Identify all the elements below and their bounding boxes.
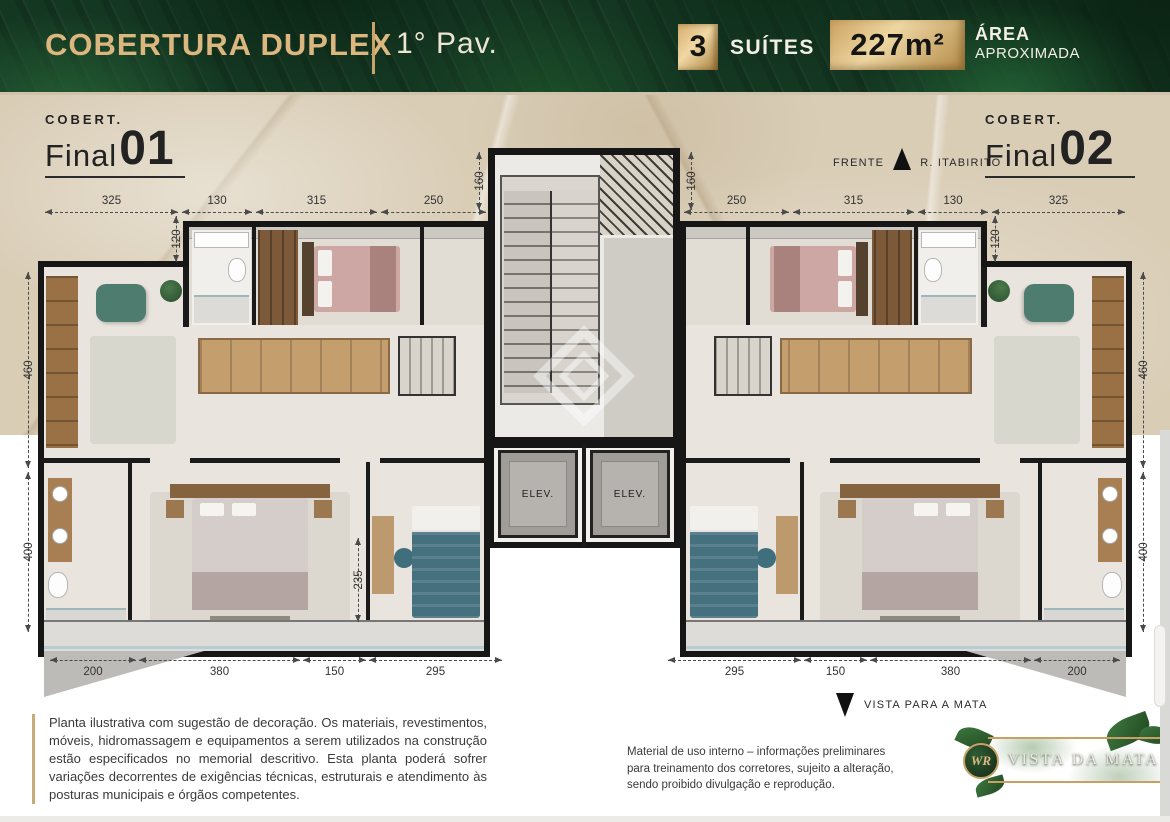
plan-stage: COBERT. Final 01 COBERT. Final 02 FRENTE… [0, 95, 1170, 822]
dim-top-left-3: 250 [381, 212, 486, 213]
plant [988, 280, 1010, 302]
vista-note: VISTA PARA A MATA [836, 693, 988, 717]
elevator-shaft-1: ELEV. [498, 450, 578, 538]
elevator-shaft-2: ELEV. [590, 450, 670, 538]
master-pillow-2 [914, 503, 938, 516]
nightstand-1 [986, 500, 1004, 518]
wardrobe-living [1092, 276, 1124, 448]
suite2-bed [690, 532, 758, 618]
dim-top-left-0: 325 [45, 212, 178, 213]
suite2-pillows [690, 506, 758, 530]
header-banner: COBERTURA DUPLEX 1° Pav. 3 SUÍTES 227m² … [0, 0, 1170, 95]
bed-top-throw [774, 246, 800, 312]
page-title: COBERTURA DUPLEX [45, 27, 392, 63]
dim-top-right-2: 130 [918, 212, 988, 213]
armchair [1024, 284, 1074, 322]
dim-side-left-0: 460 [28, 272, 29, 468]
closet-row [780, 338, 972, 394]
dim-top-right-1: 315 [793, 212, 914, 213]
floor-label: 1° Pav. [396, 27, 498, 61]
vista-da-mata-logo: VISTA DA MATA WR [955, 718, 1165, 798]
wall-mid-1 [1020, 458, 1126, 463]
suites-count-badge: 3 [678, 24, 718, 70]
master-toilet [1102, 572, 1122, 598]
vista-label: VISTA PARA A MATA [864, 699, 988, 711]
balcony-railing [686, 646, 1126, 649]
dim-bottom-left-3: 295 [369, 660, 502, 661]
wall-bath-bedroom [914, 227, 918, 325]
sink-1 [1102, 486, 1118, 502]
down-arrow-icon [836, 693, 854, 717]
disclaimer-main: Planta ilustrativa com sugestão de decor… [32, 714, 487, 804]
area-label: ÁREA APROXIMADA [975, 24, 1080, 62]
bed-top-headboard [856, 242, 868, 316]
wall-mid-3 [686, 458, 790, 463]
dim-top-right-0: 250 [684, 212, 789, 213]
dim-bottom-right-2: 380 [870, 660, 1031, 661]
bed-top-pillow-2 [838, 281, 852, 307]
sink-2 [1102, 528, 1118, 544]
dim-top-left-2: 315 [256, 212, 377, 213]
dim-top-right-3: 325 [992, 212, 1125, 213]
elevator-label-1: ELEV. [522, 489, 554, 500]
area-label-line2: APROXIMADA [975, 45, 1080, 62]
internal-stairs [714, 336, 772, 396]
dim-top-left-1: 130 [182, 212, 252, 213]
toilet-top [924, 258, 942, 282]
elevator-divider-wall [582, 444, 586, 546]
flyer-page: COBERTURA DUPLEX 1° Pav. 3 SUÍTES 227m² … [0, 0, 1170, 822]
disclaimer-internal: Material de uso interno – informações pr… [627, 744, 899, 794]
dim-top-vert-right-0: 160 [691, 152, 692, 210]
area-value-badge: 227m² [830, 20, 965, 70]
pergola-slats [600, 155, 673, 235]
dim-top-vert-left-0: 120 [176, 216, 177, 262]
suites-label: SUÍTES [730, 36, 815, 60]
elevator-label-2: ELEV. [614, 489, 646, 500]
header-divider [372, 22, 375, 74]
stair-flight-left [504, 191, 550, 393]
rug-living [994, 336, 1080, 444]
master-throw [862, 572, 978, 610]
dim-inner-left: 235 [358, 538, 359, 622]
nightstand-2 [838, 500, 856, 518]
dim-bottom-left-1: 380 [139, 660, 300, 661]
dim-top-vert-left-1: 160 [479, 152, 480, 210]
wall-mid-2 [830, 458, 980, 463]
dim-side-right-0: 460 [1143, 272, 1144, 468]
dim-top-vert-right-1: 120 [995, 216, 996, 262]
dim-bottom-right-1: 150 [804, 660, 867, 661]
bed-top-pillow-1 [838, 250, 852, 276]
shower-top [921, 295, 976, 323]
dim-bottom-left-2: 150 [303, 660, 366, 661]
desk [776, 516, 798, 594]
wall-bedroom-nook [746, 227, 750, 325]
edge-artifact-pill [1154, 625, 1166, 707]
dim-side-right-1: 400 [1143, 472, 1144, 632]
wardrobe-bedroom-top [872, 230, 912, 325]
dim-side-left-1: 400 [28, 472, 29, 632]
edge-artifact-bottom [0, 816, 1170, 822]
dim-bottom-right-0: 295 [668, 660, 801, 661]
dim-bottom-right-3: 200 [1034, 660, 1120, 661]
dim-bottom-left-0: 200 [50, 660, 136, 661]
core-corridor [604, 238, 673, 437]
area-label-line1: ÁREA [975, 24, 1080, 45]
desk-chair [756, 548, 776, 568]
wall-living-toprow [981, 267, 987, 327]
logo-name: VISTA DA MATA [992, 751, 1160, 769]
master-headboard [840, 484, 1000, 498]
logo-monogram: WR [963, 743, 999, 779]
vanity-top [921, 232, 976, 248]
logo-banner: VISTA DA MATA [988, 737, 1163, 783]
master-pillow-1 [946, 503, 970, 516]
